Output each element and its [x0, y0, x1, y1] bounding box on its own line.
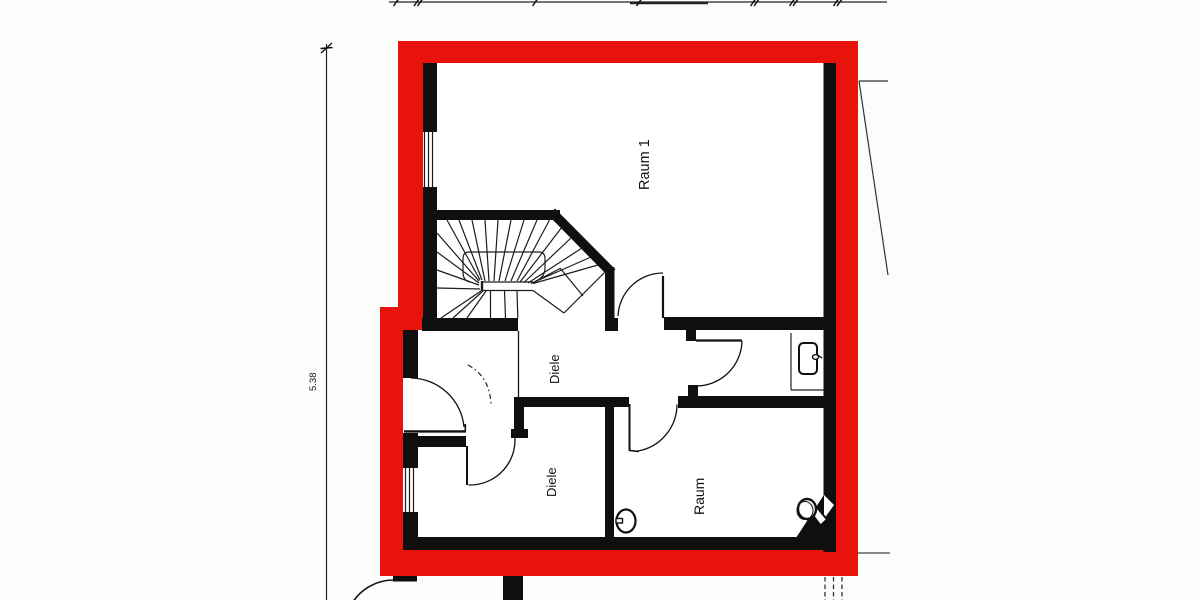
svg-text:Diele: Diele [547, 354, 562, 384]
svg-text:5.38: 5.38 [308, 373, 319, 392]
svg-text:Raum 1: Raum 1 [637, 139, 653, 190]
svg-text:Diele: Diele [544, 467, 559, 497]
svg-text:Raum: Raum [691, 478, 707, 515]
